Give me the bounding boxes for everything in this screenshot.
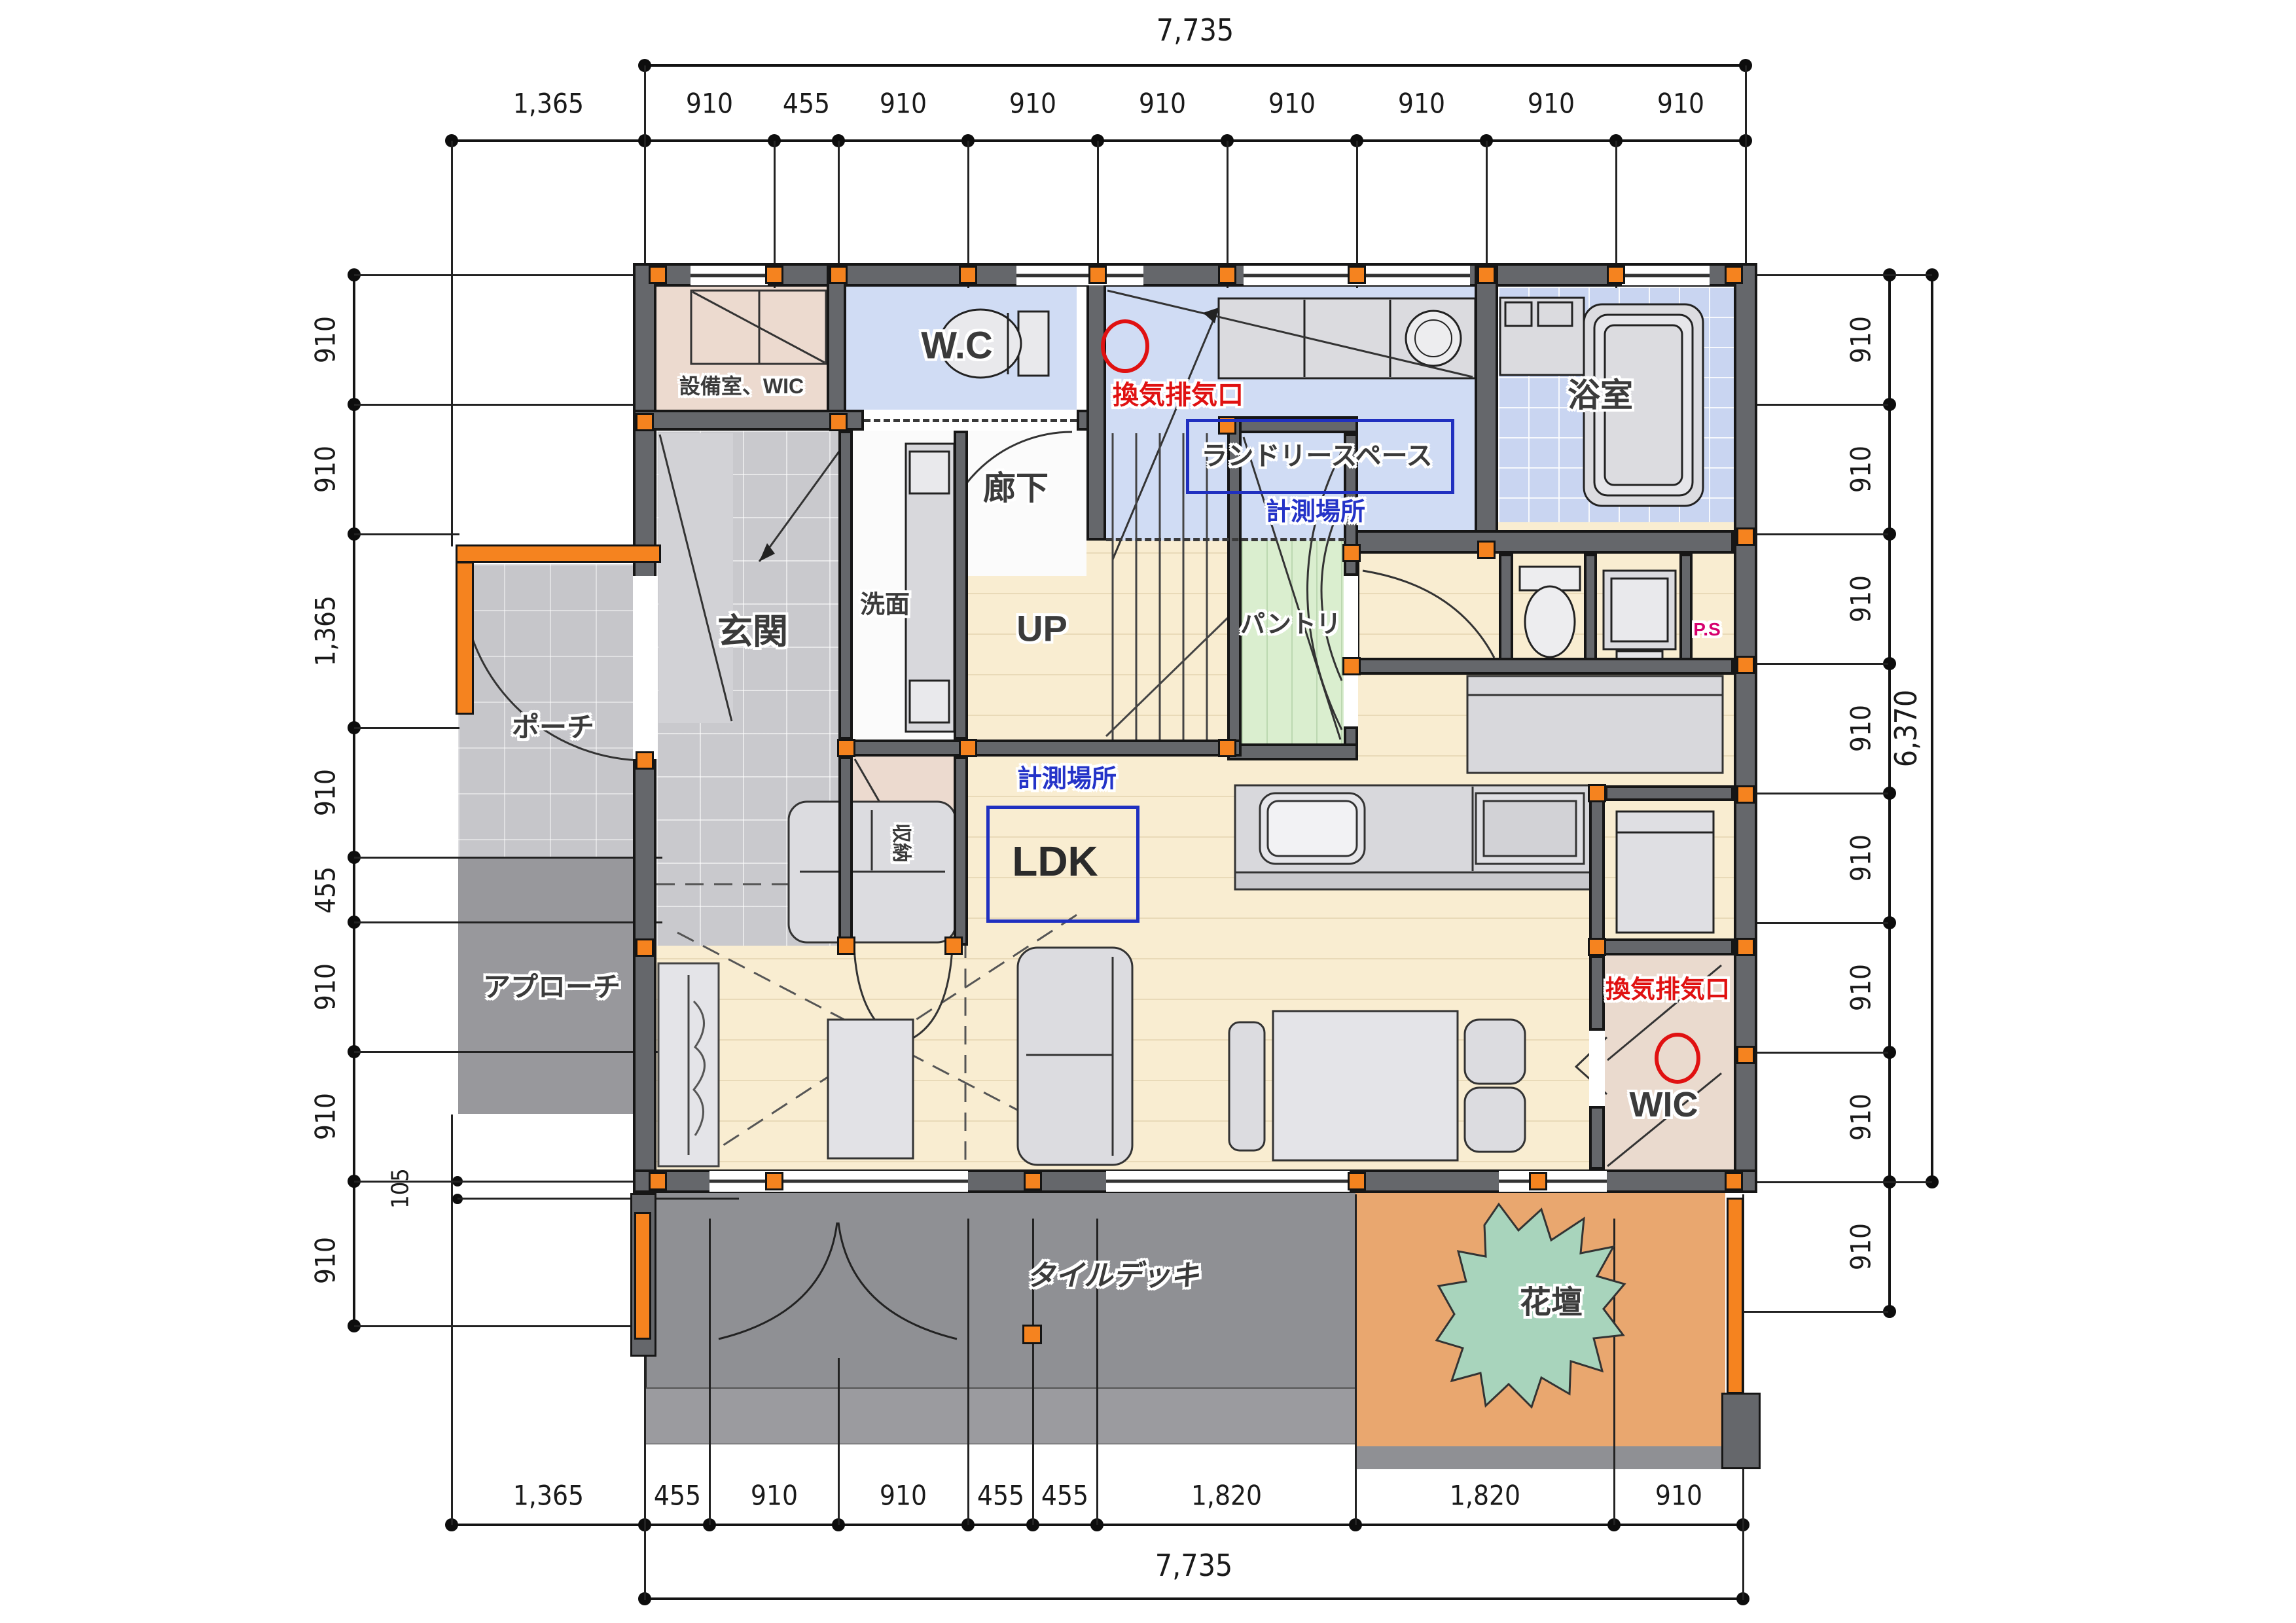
porch-canopy — [456, 544, 661, 563]
flower-bed-edge — [1727, 1198, 1744, 1394]
loveseat-sofa — [789, 802, 956, 942]
room-label-wc: W.C — [921, 324, 993, 368]
room-label-flower-bed: 花壇 — [1520, 1276, 1583, 1322]
coffee-table — [828, 1020, 913, 1158]
room-label-wic: WIC — [1630, 1084, 1698, 1125]
vanity-icon — [906, 444, 954, 732]
bathroom-counter — [1500, 298, 1584, 375]
room-label-equipment: 設備室、WIC — [679, 370, 804, 400]
room-label-genkan: 玄関 — [717, 603, 788, 654]
vent-label-laundry: 換気排気口 — [1113, 374, 1244, 412]
room-label-storage: 収納 — [889, 823, 918, 863]
room-label-tile-deck: タイルデッキ — [1026, 1252, 1199, 1294]
room-label-laundry: ランドリースペース — [1201, 435, 1432, 473]
outer-wall-top — [633, 263, 1757, 287]
door-swing-arc — [1363, 571, 1494, 658]
fridge-icon — [1617, 811, 1713, 933]
room-label-corridor: 廊下 — [983, 462, 1049, 509]
room-label-pantry: パントリ — [1240, 604, 1341, 640]
room-label-porch: ポーチ — [512, 705, 594, 745]
genkan-arrow-icon — [759, 543, 775, 562]
toilet-icon — [1520, 567, 1580, 657]
vent-circle-icon — [1655, 1033, 1700, 1084]
washbasin-icon — [1604, 571, 1676, 668]
main-sofa — [1018, 948, 1132, 1165]
washer-icon — [1406, 311, 1461, 366]
vent-label-wic: 換気排気口 — [1605, 969, 1730, 1005]
floor-plan-page: { "plan": { "rooms": { "equipment_wic": … — [0, 0, 2296, 1623]
vent-circle-icon — [1101, 319, 1149, 373]
room-label-ps: P.S — [1693, 619, 1721, 640]
dining-set — [1229, 1011, 1525, 1160]
measurement-label-ldk: 計測場所 — [1017, 758, 1117, 794]
room-label-approach: アプローチ — [483, 965, 620, 1005]
laundry-opening-dashed — [1106, 538, 1345, 541]
deck-door-arcs — [719, 1222, 957, 1339]
tv-unit — [658, 963, 719, 1166]
genkan-closet — [660, 435, 848, 721]
room-label-up: UP — [1016, 607, 1067, 650]
kitchen-back-counter — [1467, 676, 1723, 773]
equipment-closet — [691, 291, 826, 364]
room-label-washroom: 洗面 — [860, 584, 910, 620]
room-label-ldk: LDK — [1012, 837, 1098, 885]
stairs-arrow-icon — [1203, 308, 1219, 323]
measurement-label-laundry: 計測場所 — [1266, 491, 1365, 527]
furniture-layer — [0, 0, 2296, 1623]
deck-post — [1022, 1325, 1042, 1344]
room-label-bathroom: 浴室 — [1568, 369, 1633, 416]
kitchen-island — [1235, 785, 1599, 889]
porch-canopy-side — [456, 562, 474, 715]
sliding-door-dashed — [864, 419, 1077, 422]
